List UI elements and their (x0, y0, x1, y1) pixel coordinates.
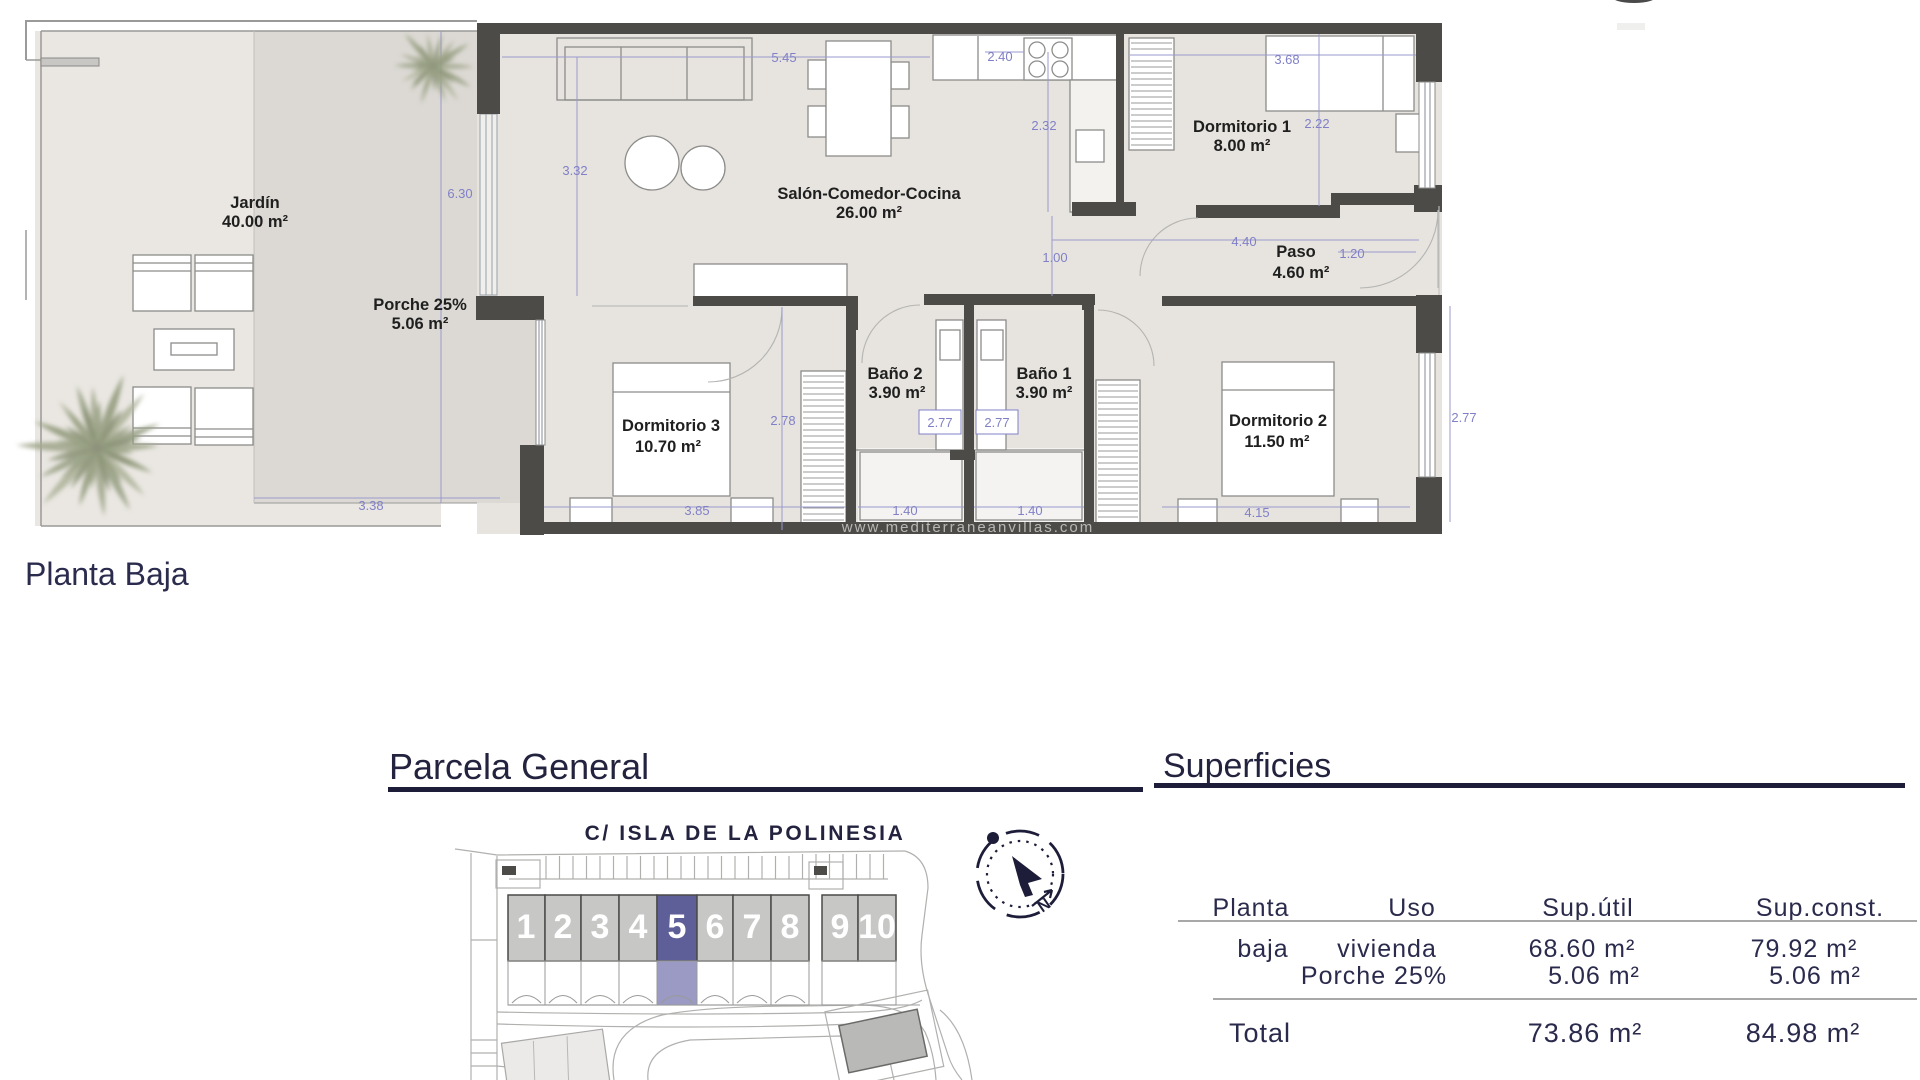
svg-text:Jardín: Jardín (230, 194, 280, 212)
svg-text:8.00 m²: 8.00 m² (1214, 137, 1271, 155)
svg-text:5.06 m²: 5.06 m² (392, 315, 449, 333)
svg-text:9: 9 (831, 908, 850, 946)
svg-text:Superficies: Superficies (1163, 747, 1331, 785)
svg-text:Baño 2: Baño 2 (867, 365, 922, 383)
svg-text:Dormitorio 1: Dormitorio 1 (1193, 118, 1291, 136)
svg-text:10: 10 (858, 908, 896, 946)
svg-text:Parcela General: Parcela General (389, 746, 649, 787)
svg-text:2.32: 2.32 (1031, 118, 1056, 133)
svg-text:Sup.const.: Sup.const. (1756, 894, 1884, 922)
svg-text:10.70 m²: 10.70 m² (635, 438, 702, 456)
svg-text:2.77: 2.77 (984, 415, 1009, 430)
svg-text:73.86 m²: 73.86 m² (1528, 1018, 1643, 1048)
svg-text:Porche 25%: Porche 25% (373, 296, 467, 314)
svg-text:Baño 1: Baño 1 (1016, 365, 1071, 383)
svg-text:Dormitorio 2: Dormitorio 2 (1229, 412, 1327, 430)
svg-text:1.40: 1.40 (1017, 503, 1042, 518)
svg-text:3: 3 (591, 908, 610, 946)
svg-text:6.30: 6.30 (447, 186, 472, 201)
svg-text:1.20: 1.20 (1339, 246, 1364, 261)
svg-text:vivienda: vivienda (1337, 935, 1437, 963)
svg-text:2.78: 2.78 (770, 413, 795, 428)
svg-text:1: 1 (517, 908, 536, 946)
svg-text:5.06 m²: 5.06 m² (1548, 962, 1640, 990)
svg-text:3.90 m²: 3.90 m² (869, 384, 926, 402)
svg-text:3.68: 3.68 (1274, 52, 1299, 67)
svg-text:Planta Baja: Planta Baja (25, 556, 189, 592)
svg-text:2.77: 2.77 (927, 415, 952, 430)
svg-text:2.40: 2.40 (987, 49, 1012, 64)
svg-text:4: 4 (629, 908, 648, 946)
svg-text:Total: Total (1229, 1018, 1291, 1048)
svg-text:8: 8 (781, 908, 800, 946)
svg-text:Porche 25%: Porche 25% (1301, 962, 1447, 990)
svg-text:6: 6 (706, 908, 725, 946)
svg-text:4.60 m²: 4.60 m² (1273, 264, 1330, 282)
svg-text:3.32: 3.32 (562, 163, 587, 178)
svg-text:11.50 m²: 11.50 m² (1244, 433, 1310, 451)
svg-text:Dormitorio 3: Dormitorio 3 (622, 417, 720, 435)
svg-text:5.45: 5.45 (771, 50, 796, 65)
svg-text:3.85: 3.85 (684, 503, 709, 518)
svg-text:2: 2 (554, 908, 573, 946)
svg-text:26.00 m²: 26.00 m² (836, 204, 903, 222)
svg-text:4.40: 4.40 (1231, 234, 1256, 249)
svg-text:1.00: 1.00 (1042, 250, 1067, 265)
svg-text:3.38: 3.38 (358, 498, 383, 513)
svg-text:2.22: 2.22 (1304, 116, 1329, 131)
svg-text:2.77: 2.77 (1451, 410, 1476, 425)
svg-text:1.40: 1.40 (892, 503, 917, 518)
svg-text:C/ ISLA DE LA POLINESIA: C/ ISLA DE LA POLINESIA (585, 822, 906, 845)
svg-text:5.06 m²: 5.06 m² (1769, 962, 1861, 990)
svg-text:Uso: Uso (1388, 894, 1435, 922)
svg-text:4.15: 4.15 (1244, 505, 1269, 520)
svg-text:Salón-Comedor-Cocina: Salón-Comedor-Cocina (777, 185, 961, 203)
svg-text:Sup.útil: Sup.útil (1542, 894, 1633, 922)
svg-text:79.92 m²: 79.92 m² (1751, 935, 1858, 963)
svg-text:baja: baja (1237, 935, 1288, 963)
svg-text:84.98 m²: 84.98 m² (1746, 1018, 1861, 1048)
svg-text:40.00 m²: 40.00 m² (222, 213, 289, 231)
svg-text:Planta: Planta (1213, 894, 1290, 922)
svg-text:www.mediterraneanvillas.com: www.mediterraneanvillas.com (841, 519, 1094, 536)
svg-text:Paso: Paso (1276, 243, 1315, 261)
svg-text:7: 7 (743, 908, 762, 946)
svg-text:68.60 m²: 68.60 m² (1529, 935, 1636, 963)
svg-text:3.90 m²: 3.90 m² (1016, 384, 1073, 402)
svg-text:5: 5 (668, 908, 687, 946)
